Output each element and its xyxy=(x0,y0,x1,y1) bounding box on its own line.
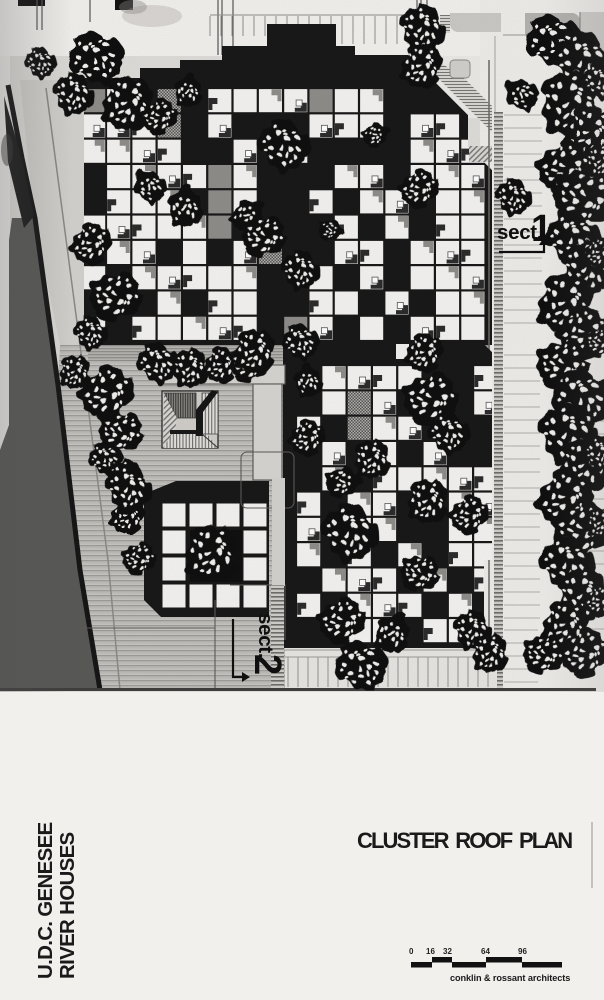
svg-text:96: 96 xyxy=(518,947,527,956)
svg-text:conklin & rossant architects: conklin & rossant architects xyxy=(450,973,570,983)
svg-text:U.D.C. GENESEE: U.D.C. GENESEE xyxy=(34,822,57,979)
svg-text:32: 32 xyxy=(443,947,452,956)
svg-text:64: 64 xyxy=(481,947,490,956)
svg-text:0: 0 xyxy=(409,947,414,956)
svg-text:16: 16 xyxy=(426,947,435,956)
svg-text:RIVER HOUSES: RIVER HOUSES xyxy=(56,832,79,979)
svg-text:CLUSTER ROOF PLAN: CLUSTER ROOF PLAN xyxy=(357,828,572,853)
